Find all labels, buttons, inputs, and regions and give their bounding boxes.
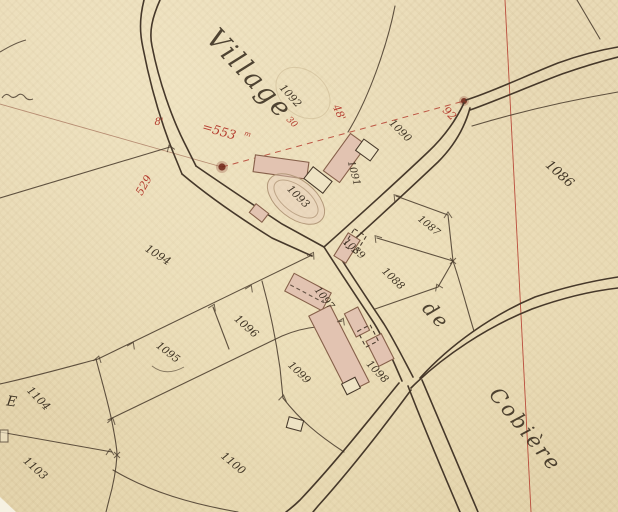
parcel-label-1100: 1100 bbox=[218, 449, 248, 477]
corner-stroke-topleft bbox=[0, 40, 26, 52]
parcel-label-1099: 1099 bbox=[285, 359, 313, 386]
boundary-village-east bbox=[348, 6, 395, 132]
boundary-1099-west bbox=[262, 281, 283, 398]
parcel-label-1096: 1096 bbox=[232, 312, 262, 340]
boundary-1087-north bbox=[396, 196, 448, 215]
road-northwest-east-edge bbox=[151, 0, 196, 166]
measurement-553-unit: m bbox=[243, 129, 252, 139]
edge-rect-left bbox=[0, 430, 8, 442]
survey-station-dot-core bbox=[218, 163, 225, 170]
parcel-label-1094: 1094 bbox=[143, 242, 174, 268]
boundary-topright-spur bbox=[577, 0, 600, 39]
road-south-east-edge bbox=[422, 380, 478, 512]
boundary-1104-1103 bbox=[0, 432, 112, 452]
boundary-de-area bbox=[453, 261, 474, 331]
parcel-label-1104: 1104 bbox=[24, 384, 53, 413]
boundary-1095-north bbox=[0, 255, 312, 384]
parcel-label-1095: 1095 bbox=[154, 340, 183, 366]
territory-prefix-label: de bbox=[417, 296, 455, 334]
boundary-1087-1088 bbox=[377, 238, 453, 261]
lane-southwest-west-edge bbox=[286, 383, 399, 512]
measurement-553-label: =553 bbox=[201, 119, 238, 143]
parcel-label-1087: 1087 bbox=[415, 214, 442, 239]
cadastral-map-canvas: Village de Cobière E 1086 1087 1088 1089… bbox=[0, 0, 618, 512]
parcel-label-1090: 1090 bbox=[386, 117, 414, 145]
village-building-small-southwest bbox=[249, 204, 268, 223]
boundary-1095-1096-divider bbox=[213, 307, 229, 349]
road-topright-south-edge bbox=[470, 57, 618, 110]
road-south-west-edge bbox=[408, 386, 460, 512]
road-topright-north-edge bbox=[466, 47, 618, 100]
measurement-529-label: 529 bbox=[133, 173, 155, 198]
measurement-8-label: 8' bbox=[154, 117, 163, 128]
section-letter-label: E bbox=[4, 393, 17, 410]
edge-script-fragment bbox=[2, 94, 33, 99]
road-northwest-west-edge bbox=[141, 0, 183, 174]
scan-corner-sliver bbox=[0, 497, 16, 512]
parcel-label-1103: 1103 bbox=[21, 454, 51, 482]
boundary-1087-east bbox=[448, 215, 453, 261]
parcel-label-1091: 1091 bbox=[345, 160, 362, 187]
boundary-south-of-road bbox=[472, 92, 618, 126]
parcel-label-1086: 1086 bbox=[542, 158, 577, 191]
boundary-1095-south bbox=[108, 321, 342, 420]
measurement-92-label: 92 bbox=[440, 104, 459, 123]
measurement-30-label: 30 bbox=[284, 115, 299, 130]
village-label: Village bbox=[200, 23, 299, 126]
survey-line-west bbox=[0, 104, 222, 167]
buildings bbox=[249, 134, 394, 432]
lane-southwest-east-edge bbox=[313, 390, 411, 512]
measurement-48-label: 48' bbox=[329, 102, 347, 123]
parcel-label-1088: 1088 bbox=[379, 265, 407, 292]
boundary-west-vertical bbox=[96, 359, 117, 512]
boundary-1100-southwest bbox=[113, 470, 238, 512]
flourish-1095 bbox=[152, 366, 184, 372]
cadastral-map: Village de Cobière E 1086 1087 1088 1089… bbox=[0, 0, 618, 512]
